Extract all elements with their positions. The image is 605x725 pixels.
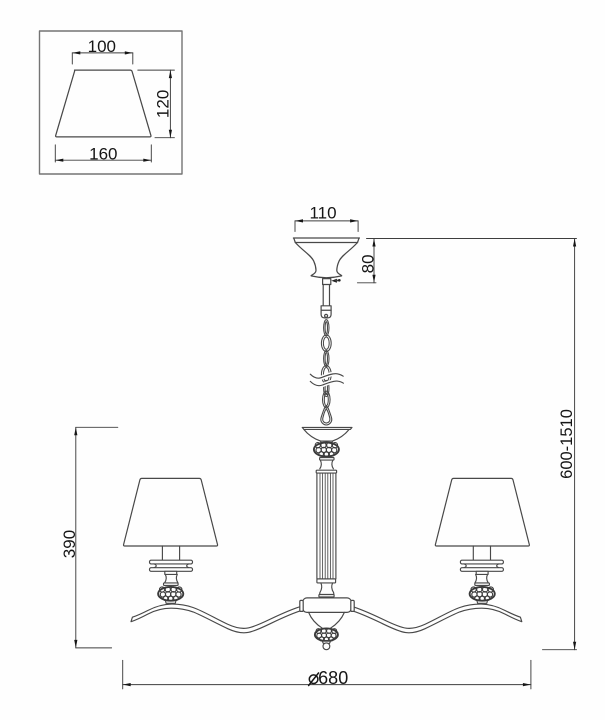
svg-text:160: 160 — [89, 145, 117, 164]
svg-text:80: 80 — [359, 254, 378, 273]
svg-text:110: 110 — [309, 204, 336, 223]
svg-text:100: 100 — [88, 37, 116, 56]
svg-text:120: 120 — [153, 90, 172, 118]
svg-text:680: 680 — [318, 668, 348, 688]
svg-text:600-1510: 600-1510 — [558, 409, 576, 479]
svg-text:390: 390 — [60, 530, 79, 558]
